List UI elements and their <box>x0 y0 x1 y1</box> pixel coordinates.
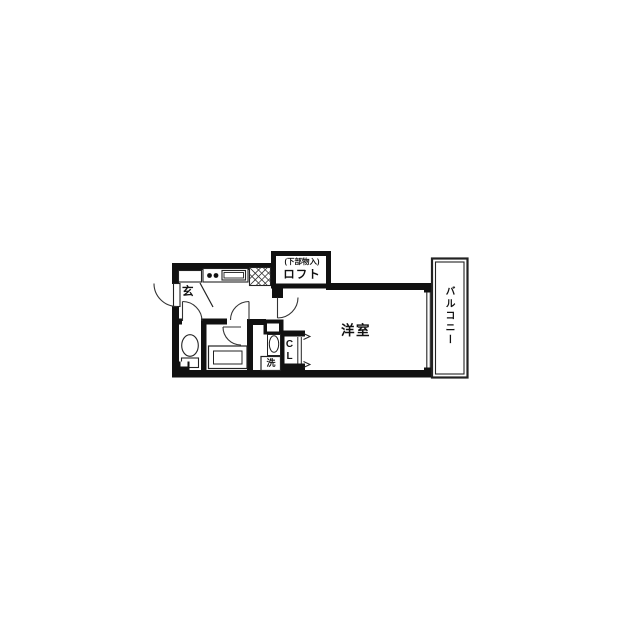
bath-door-arc <box>223 327 241 345</box>
pier-duct-opening <box>267 324 279 332</box>
toilet-bowl <box>182 335 199 357</box>
shoe-cabinet <box>179 271 202 283</box>
stove-burner-1 <box>207 273 212 278</box>
washroom-door-arc <box>231 302 250 321</box>
wall-hall-left-stub <box>172 319 182 325</box>
closet-front <box>298 334 310 368</box>
toilet-door-arc <box>183 302 203 322</box>
pipe-space-notch <box>181 362 188 367</box>
closet-label: CL <box>284 339 294 363</box>
refrigerator-space <box>250 268 271 286</box>
wall-left-upper <box>172 263 179 284</box>
kitchen-sink-inner <box>224 273 244 279</box>
washing-machine-label: 洗 <box>261 356 281 371</box>
room-door-arc <box>278 298 299 319</box>
entrance-label: 玄 <box>182 283 194 299</box>
bathtub-inner <box>214 351 243 364</box>
washbasin-bowl <box>269 336 278 353</box>
stove-burner-2 <box>214 273 219 278</box>
wall-bath-wash-divider <box>247 319 253 371</box>
loft-label: ロフト <box>276 266 328 282</box>
balcony-label: バルコニー <box>443 286 453 366</box>
floorplan-canvas: (下部物入) ロフト 玄 洋室 CL 洗 バルコニー <box>0 0 640 640</box>
western-room-label: 洋室 <box>341 319 371 339</box>
wall-toilet-bath-divider <box>201 319 207 371</box>
balcony-window <box>427 292 431 368</box>
front-door-panel <box>174 284 181 307</box>
wall-bottom <box>172 370 433 378</box>
floorplan-drawing <box>0 0 640 640</box>
wall-top-right <box>326 283 433 290</box>
wall-closet-bottom <box>281 364 305 371</box>
entrance-step-line <box>200 283 213 307</box>
wall-closet-top <box>281 331 305 337</box>
